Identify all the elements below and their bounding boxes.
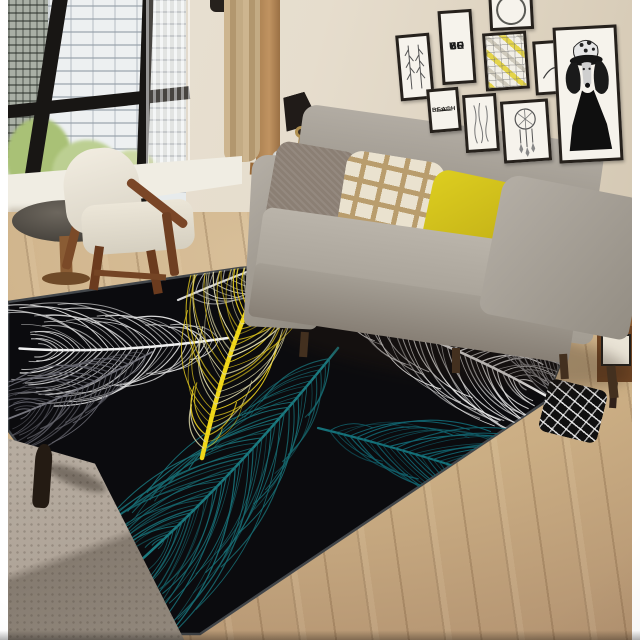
line-sketch-art xyxy=(465,96,497,150)
be-yourself-text: BE YO UR SE LF xyxy=(441,12,474,82)
beach-sign-line: CAFE xyxy=(435,106,453,113)
frame-be-yourself: BE YO UR SE LF xyxy=(437,9,476,85)
sofa-leg xyxy=(452,348,460,373)
frame-line-sketch xyxy=(462,93,500,153)
product-photo: BE YO UR SE LF BEACH CAFE xyxy=(0,0,640,640)
frame-dreamcatcher xyxy=(500,98,552,163)
sofa-arm-right xyxy=(478,173,640,341)
frame-circle-print xyxy=(488,0,534,31)
right-white-border xyxy=(632,0,640,640)
left-white-border xyxy=(0,0,8,640)
frame-poodle-portrait xyxy=(552,24,623,163)
frame-grid-mosaic xyxy=(482,31,530,92)
round-side-table-base xyxy=(42,272,90,285)
sofa-leg xyxy=(559,354,569,379)
dreamcatcher-art xyxy=(503,102,549,161)
poodle-portrait-art xyxy=(556,28,621,161)
be-yourself-line: LF xyxy=(450,41,464,52)
grid-mosaic-art xyxy=(485,34,527,89)
beach-sign-text: BEACH CAFE xyxy=(429,90,458,130)
circle-art xyxy=(495,0,527,26)
frame-beach-sign: BEACH CAFE xyxy=(426,87,462,134)
